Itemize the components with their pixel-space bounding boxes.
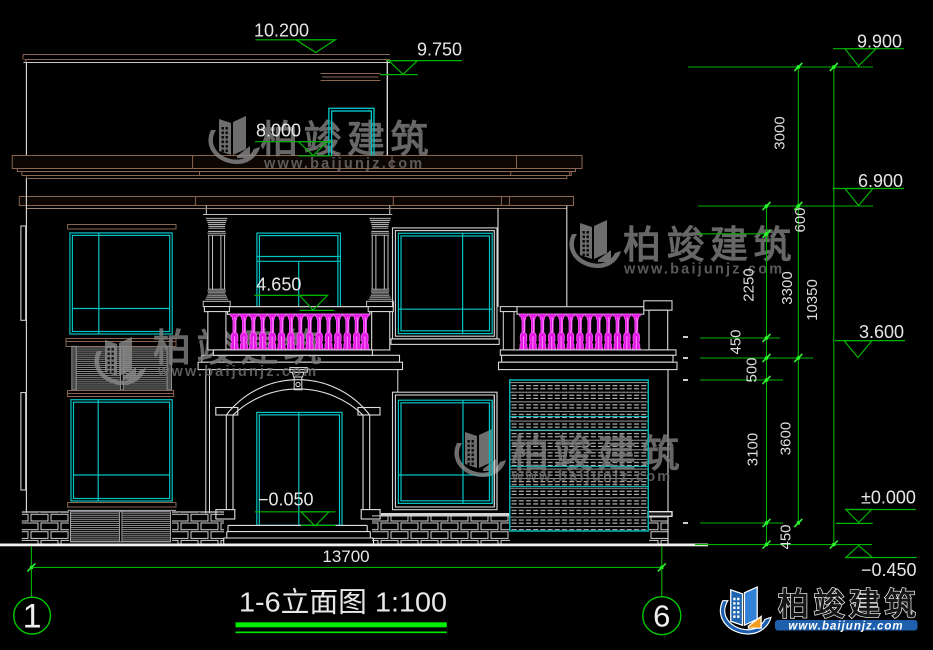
svg-text:3000: 3000: [772, 116, 789, 149]
svg-text:3600: 3600: [778, 422, 795, 455]
svg-text:450: 450: [778, 524, 795, 549]
svg-text:1-6立面图 1:100: 1-6立面图 1:100: [239, 587, 447, 618]
svg-text:10.200: 10.200: [254, 21, 309, 41]
svg-text:13700: 13700: [322, 547, 369, 566]
svg-text:柏竣建筑: 柏竣建筑: [778, 587, 920, 622]
svg-text:450: 450: [728, 329, 745, 354]
svg-text:www.baijunjz.com: www.baijunjz.com: [263, 156, 424, 172]
svg-text:3100: 3100: [745, 433, 762, 466]
svg-text:6: 6: [653, 599, 670, 634]
svg-text:500: 500: [744, 357, 761, 382]
svg-text:8.000: 8.000: [256, 121, 301, 141]
svg-text:www.baijunjz.com: www.baijunjz.com: [623, 262, 784, 278]
svg-text:−0.050: −0.050: [258, 490, 314, 510]
svg-text:3300: 3300: [779, 271, 796, 304]
svg-text:4.650: 4.650: [256, 274, 301, 294]
svg-text:www.baijunjz.com: www.baijunjz.com: [157, 364, 318, 380]
svg-text:600: 600: [792, 207, 809, 232]
svg-text:www.baijunjz.com: www.baijunjz.com: [788, 620, 903, 632]
svg-text:1: 1: [23, 598, 42, 636]
svg-text:9.750: 9.750: [417, 40, 462, 60]
svg-text:±0.000: ±0.000: [861, 488, 916, 508]
svg-text:−0.450: −0.450: [861, 560, 917, 580]
svg-text:3.600: 3.600: [859, 322, 904, 342]
svg-text:2250: 2250: [741, 268, 758, 301]
svg-text:10350: 10350: [804, 279, 821, 321]
